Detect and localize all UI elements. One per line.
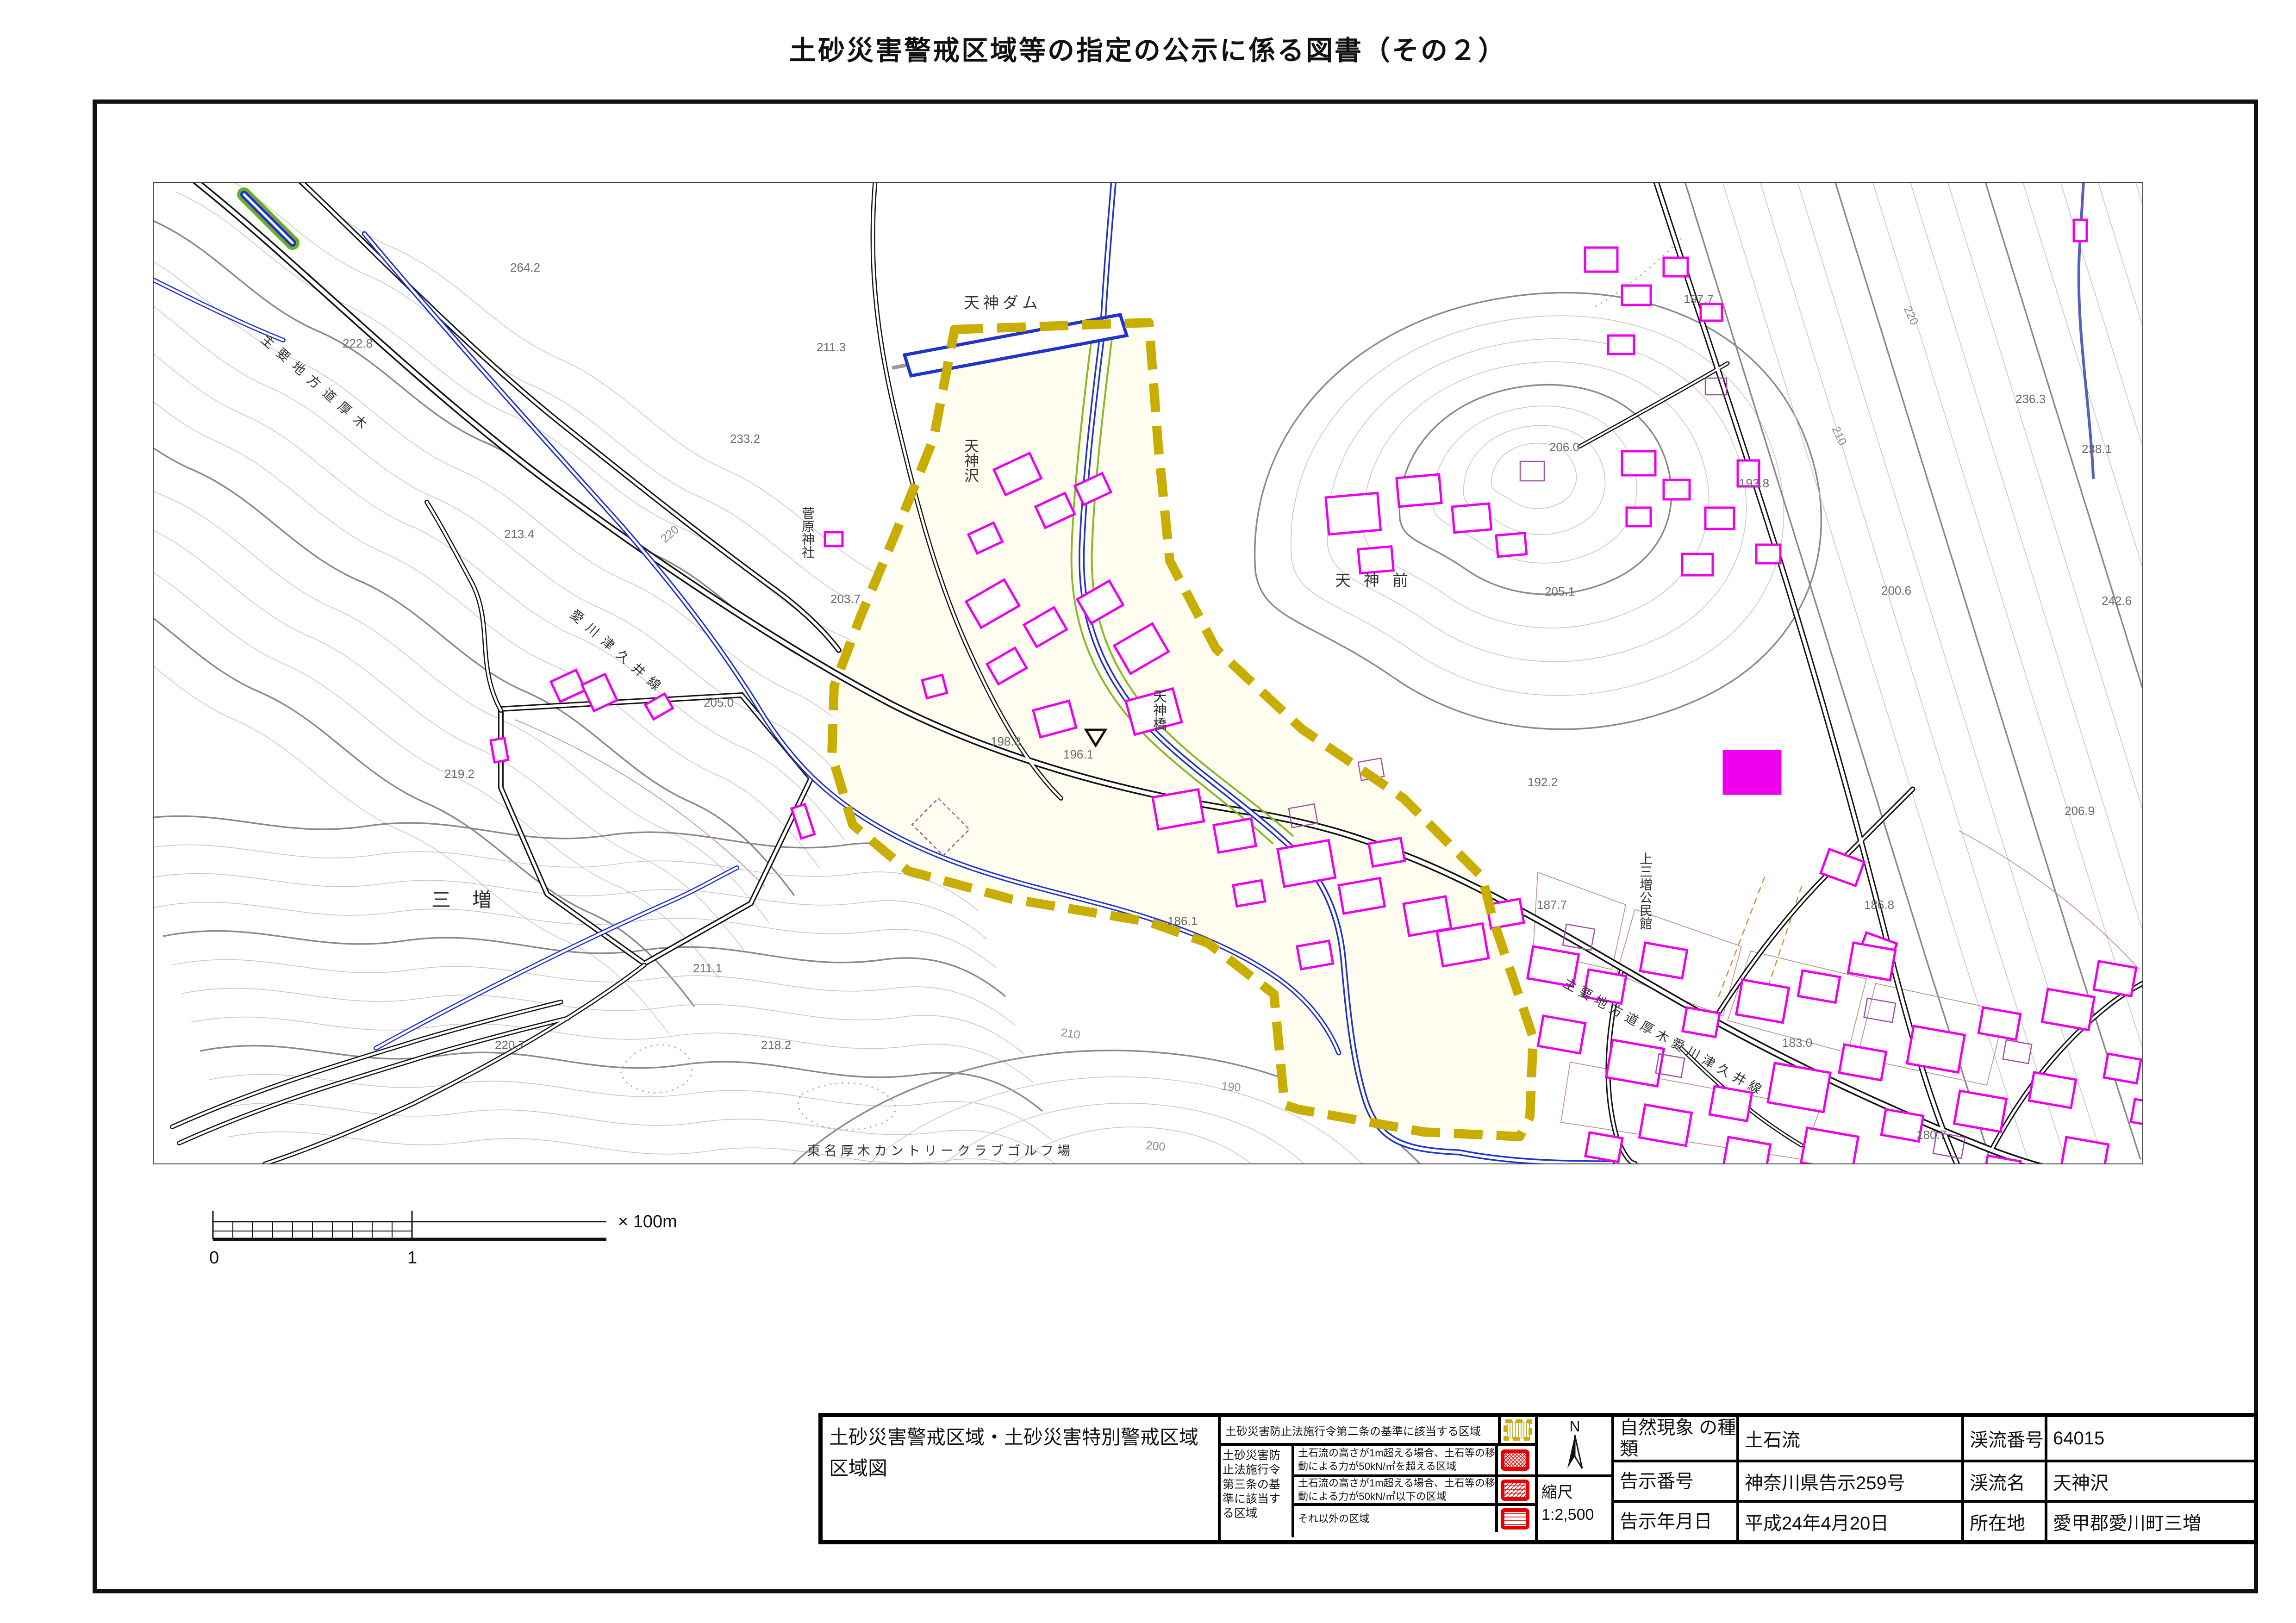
stream-number-label: 渓流番号 <box>1964 1417 2047 1460</box>
legend-row4-swatch-cell <box>1495 1506 1532 1532</box>
notice-number-value: 神奈川県告示259号 <box>1739 1462 1964 1500</box>
legend-row2-label: 土石流の高さが1m超える場合、土石等の移動による力が50kN/㎡を超える区域 <box>1294 1446 1495 1474</box>
legend-row2-swatch-cell <box>1495 1446 1532 1474</box>
special-zone-horizontal-swatch <box>1500 1508 1530 1530</box>
phenomenon-type-label: 自然現象 の種類 <box>1614 1417 1739 1460</box>
info-row-1: 自然現象 の種類 土石流 渓流番号 64015 <box>1614 1417 2254 1460</box>
topographic-map <box>154 183 2142 1163</box>
legend-row3-swatch-cell <box>1495 1477 1532 1503</box>
scalebar-unit: × 100m <box>618 1212 677 1231</box>
stream-name-value: 天神沢 <box>2047 1462 2254 1500</box>
map-sheet-title-line2: 区域図 <box>829 1453 1211 1484</box>
legend-group-label: 土砂災害防止法施行令第三条の基準に該当する区域 <box>1221 1446 1294 1537</box>
hazard-zone-area <box>832 323 1533 1137</box>
scale-label: 縮尺 <box>1541 1482 1608 1504</box>
north-arrow-cell: N <box>1538 1417 1611 1477</box>
special-zone-crosshatch-swatch <box>1500 1449 1530 1471</box>
phenomenon-type-value: 土石流 <box>1739 1417 1964 1460</box>
notice-date-label: 告示年月日 <box>1614 1503 1739 1540</box>
scale-cell: 縮尺 1:2,500 <box>1538 1477 1611 1537</box>
special-zone-diagonal-swatch <box>1500 1479 1530 1501</box>
location-value: 愛甲郡愛川町三増 <box>2047 1503 2254 1540</box>
notice-number-label: 告示番号 <box>1614 1462 1739 1500</box>
location-label: 所在地 <box>1964 1503 2047 1540</box>
scale-value: 1:2,500 <box>1541 1504 1608 1526</box>
scalebar-one: 1 <box>407 1248 417 1268</box>
legend-info-table: 土砂災害警戒区域・土砂災害特別警戒区域 区域図 土砂災害防止法施行令第二条の基準… <box>818 1413 2258 1544</box>
hazard-zone-swatch <box>1503 1419 1533 1441</box>
hazard-map: 天神ダム天神沢天神前天神橋菅原神社三増上三増公民館東名厚木カントリークラブゴルフ… <box>153 182 2143 1164</box>
north-scale-column: N 縮尺 1:2,500 <box>1538 1417 1614 1540</box>
info-row-2: 告示番号 神奈川県告示259号 渓流名 天神沢 <box>1614 1460 2254 1500</box>
north-letter: N <box>1569 1418 1580 1435</box>
page-title: 土砂災害警戒区域等の指定の公示に係る図書（その２） <box>0 29 2296 68</box>
info-row-3: 告示年月日 平成24年4月20日 所在地 愛甲郡愛川町三増 <box>1614 1500 2254 1540</box>
map-sheet-title-cell: 土砂災害警戒区域・土砂災害特別警戒区域 区域図 <box>823 1417 1221 1540</box>
legend-row1-swatch-cell <box>1498 1417 1535 1443</box>
north-arrow-icon: N <box>1556 1418 1593 1473</box>
info-table: 自然現象 の種類 土石流 渓流番号 64015 告示番号 神奈川県告示259号 … <box>1614 1417 2254 1540</box>
stream-name-label: 渓流名 <box>1964 1462 2047 1500</box>
legend-block: 土砂災害防止法施行令第二条の基準に該当する区域 土砂災害防止法施行令第三条の基準… <box>1221 1417 1538 1540</box>
stream-number-value: 64015 <box>2047 1417 2254 1460</box>
legend-row3-label: 土石流の高さが1m超える場合、土石等の移動による力が50kN/㎡以下の区域 <box>1294 1477 1495 1503</box>
scale-bar: 0 1 × 100m <box>199 1203 708 1282</box>
notice-date-value: 平成24年4月20日 <box>1739 1503 1964 1540</box>
legend-row1-label: 土砂災害防止法施行令第二条の基準に該当する区域 <box>1221 1417 1498 1443</box>
scalebar-zero: 0 <box>209 1248 219 1268</box>
legend-row4-label: それ以外の区域 <box>1294 1506 1495 1532</box>
field-road-loop <box>501 695 811 964</box>
map-sheet-title-line1: 土砂災害警戒区域・土砂災害特別警戒区域 <box>829 1422 1211 1453</box>
